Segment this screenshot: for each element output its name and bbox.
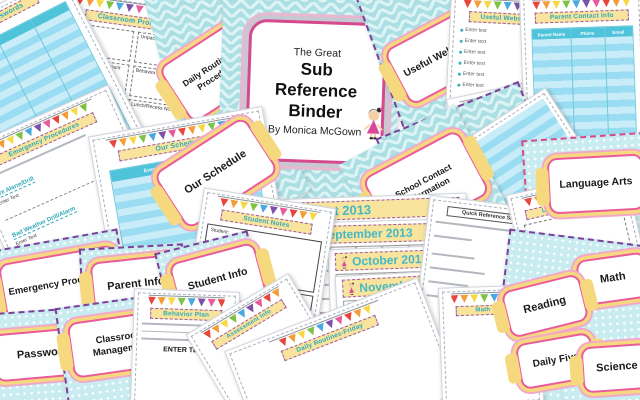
bunting-flag — [473, 0, 481, 8]
bunting-flag — [298, 211, 307, 220]
bunting-flag — [622, 0, 630, 7]
bunting-flag — [177, 128, 186, 137]
title-line: Binder — [288, 101, 343, 123]
bunting-flag — [269, 206, 278, 215]
bunting-flag — [334, 316, 344, 326]
bunting-flag — [128, 136, 137, 145]
bunting-flag — [503, 2, 511, 10]
bunting-flag — [207, 299, 215, 307]
bunting-flag — [70, 107, 81, 118]
calendar-title: October 2013 — [352, 252, 428, 269]
title-tagline: The Great — [294, 46, 342, 60]
bunting-flag — [15, 131, 26, 142]
bunting-flag — [470, 294, 478, 302]
bunting-flag — [177, 298, 185, 306]
girl-icon — [347, 282, 357, 295]
bunting-flag — [483, 1, 491, 9]
bunting-flag — [135, 5, 144, 14]
bunting-flag — [524, 197, 534, 207]
divider-card-language-arts: Language Arts — [547, 154, 640, 215]
bunting-flag — [316, 323, 326, 333]
title-line: Reference — [275, 80, 358, 103]
bunting-flag — [108, 140, 117, 149]
column-header: Email — [604, 29, 632, 35]
bunting-banner — [148, 295, 224, 309]
bunting-flag — [297, 330, 307, 340]
bunting-flag — [463, 0, 471, 8]
bunting-flag — [61, 111, 72, 122]
bunting-flag — [217, 299, 224, 307]
bunting-flag — [167, 297, 175, 305]
bunting-flag — [95, 0, 104, 9]
column-header: Parent Name — [532, 31, 570, 37]
parent-contact-title: Parent Contact Info — [535, 9, 629, 23]
bunting-flag — [229, 200, 238, 209]
bunting-flag — [148, 133, 157, 142]
bunting-flag — [289, 209, 298, 218]
divider-label: Language Arts — [559, 176, 633, 193]
column-header: Phone — [570, 30, 604, 36]
bunting-flag — [197, 124, 206, 133]
bunting-flag — [451, 295, 458, 303]
bunting-flag — [259, 204, 268, 213]
bunting-flag — [219, 198, 228, 207]
bunting-flag — [79, 103, 90, 114]
bunting-flag — [85, 0, 94, 7]
calendar-title: September 2013 — [320, 226, 412, 242]
bunting-flag — [542, 1, 550, 9]
bunting-flag — [207, 122, 216, 131]
bunting-flag — [612, 0, 620, 7]
bunting-flag — [168, 129, 177, 138]
bunting-flag — [362, 305, 372, 315]
bunting-flag — [306, 327, 316, 337]
bunting-flag — [115, 2, 124, 11]
bunting-flag — [572, 0, 580, 8]
bunting-flag — [187, 298, 195, 306]
girl-icon — [340, 255, 349, 268]
bunting-flag — [480, 294, 488, 302]
bunting-flag — [308, 212, 317, 221]
bunting-flag — [353, 309, 363, 319]
bunting-flag — [158, 131, 167, 140]
bunting-flag — [148, 297, 155, 305]
bunting-flag — [118, 138, 127, 147]
bunting-flag — [325, 319, 335, 329]
bunting-flag — [43, 119, 54, 130]
bunting-flag — [6, 135, 17, 146]
bunting-flag — [105, 1, 114, 10]
divider-label: Science — [596, 360, 638, 377]
bunting-flag — [125, 4, 134, 13]
bunting-flag — [158, 297, 166, 305]
bunting-flag — [460, 295, 468, 303]
bunting-flag — [582, 0, 590, 8]
bunting-flag — [249, 203, 258, 212]
title-line: Sub — [300, 59, 333, 80]
bunting-flag — [602, 0, 610, 7]
bunting-flag — [24, 127, 35, 138]
divider-card-science: Science — [580, 343, 640, 394]
bunting-flag — [532, 1, 540, 9]
bunting-flag — [552, 1, 560, 9]
bunting-flag — [592, 0, 600, 8]
bunting-flag — [279, 208, 288, 217]
bunting-flag — [239, 201, 248, 210]
bunting-flag — [493, 1, 501, 9]
bunting-flag — [34, 123, 45, 134]
bunting-flag — [52, 115, 63, 126]
title-byline: By Monica McGown — [268, 123, 362, 138]
divider-label: Reading — [522, 294, 567, 318]
bunting-flag — [138, 135, 147, 144]
binder-cover-collage: Classroom Procedures ArrivalRestroom/Lun… — [0, 0, 640, 400]
bunting-flag — [278, 337, 288, 347]
bunting-flag — [197, 298, 205, 306]
bunting-flag — [562, 0, 570, 8]
bunting-flag — [187, 126, 196, 135]
bunting-flag — [272, 288, 283, 299]
divider-label: Math — [599, 270, 626, 287]
bunting-flag — [344, 312, 354, 322]
bunting-flag — [288, 334, 298, 344]
